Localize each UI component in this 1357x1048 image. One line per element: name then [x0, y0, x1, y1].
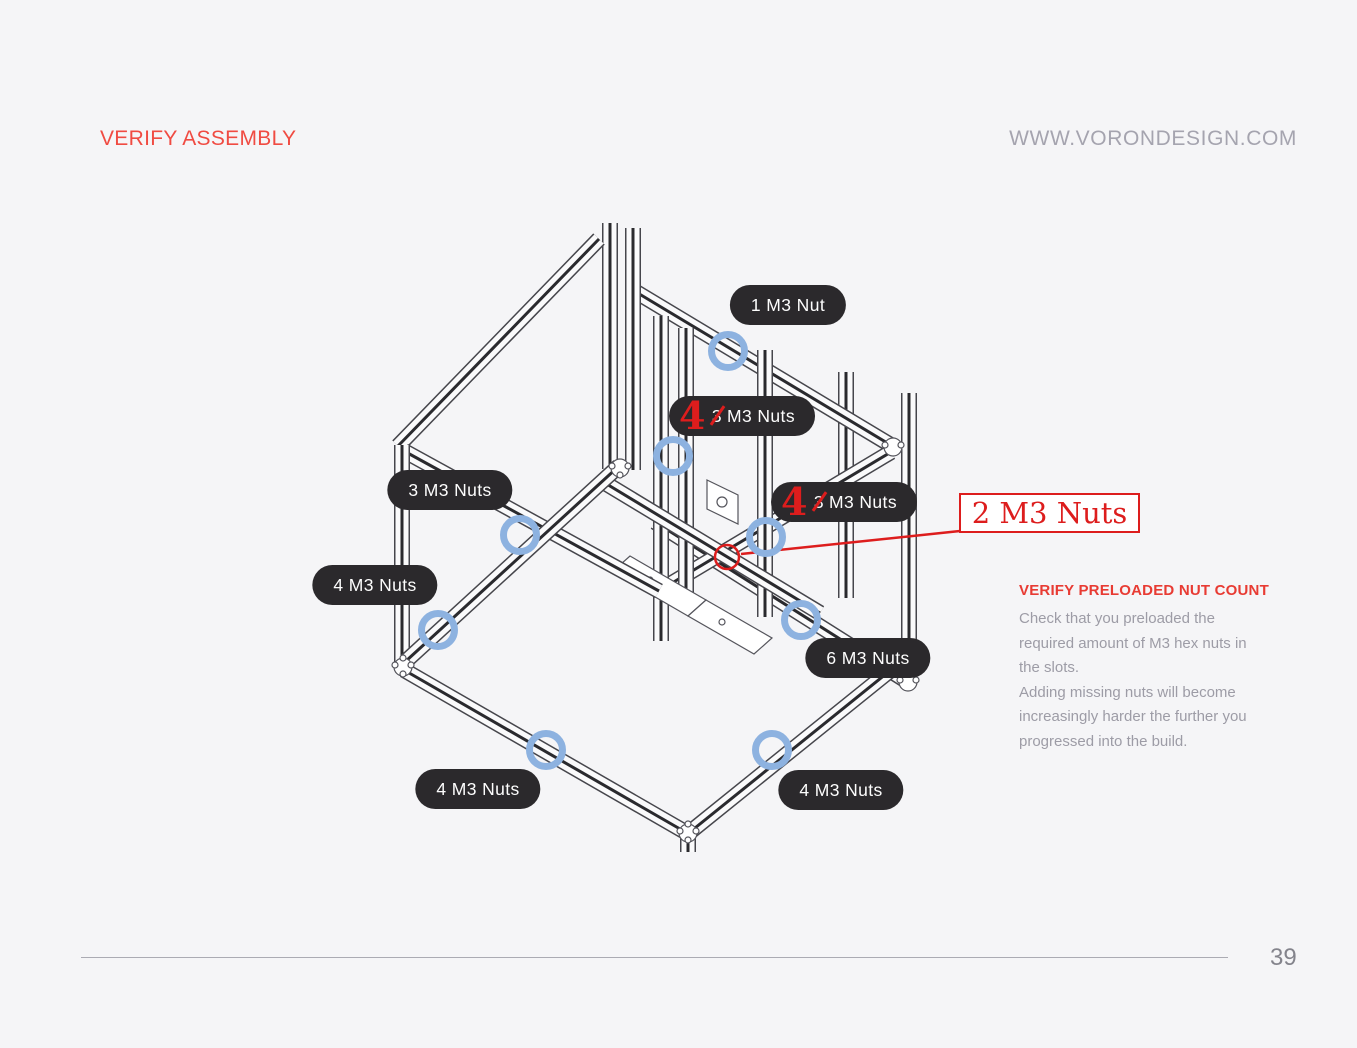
nut-location-marker — [418, 610, 458, 650]
note-paragraph-2: Adding missing nuts will become increasi… — [1019, 681, 1257, 755]
corrected-count: 4 — [679, 397, 706, 435]
verify-note: VERIFY PRELOADED NUT COUNT Check that yo… — [1019, 582, 1261, 755]
note-paragraph-1: Check that you preloaded the required am… — [1019, 607, 1257, 681]
callout-label: 4 M3 Nuts — [799, 780, 882, 801]
nut-count-callout-8: 4 M3 Nuts — [778, 770, 903, 810]
callout-label: 3 M3 Nuts — [408, 480, 491, 501]
struck-count: 3 — [814, 492, 824, 513]
nut-count-callout-1: 1 M3 Nut — [730, 285, 846, 325]
struck-count: 3 — [712, 406, 722, 427]
nut-location-marker — [781, 600, 821, 640]
nut-location-marker — [708, 331, 748, 371]
nut-count-callout-4: 4 3 M3 Nuts — [771, 482, 917, 522]
correction-annotation-box: 2 M3 Nuts — [959, 493, 1140, 533]
nut-count-callout-6: 6 M3 Nuts — [805, 638, 930, 678]
page-number: 39 — [1270, 944, 1297, 972]
frame-illustration — [0, 0, 1357, 1048]
callout-label: M3 Nuts — [829, 492, 897, 513]
nut-location-marker — [526, 730, 566, 770]
nut-location-marker — [752, 730, 792, 770]
nut-count-callout-2: 4 3 M3 Nuts — [669, 396, 815, 436]
manual-page: VERIFY ASSEMBLY WWW.VORONDESIGN.COM — [0, 0, 1357, 1048]
note-heading: VERIFY PRELOADED NUT COUNT — [1019, 582, 1261, 599]
nut-location-marker — [653, 436, 693, 476]
callout-label: 6 M3 Nuts — [826, 648, 909, 669]
corrected-count: 4 — [781, 483, 808, 521]
nut-count-callout-7: 4 M3 Nuts — [415, 769, 540, 809]
callout-label: 1 M3 Nut — [751, 295, 825, 316]
nut-count-callout-5: 4 M3 Nuts — [312, 565, 437, 605]
nut-count-callout-3: 3 M3 Nuts — [387, 470, 512, 510]
footer-divider — [81, 957, 1228, 958]
callout-label: 4 M3 Nuts — [436, 779, 519, 800]
callout-label: 4 M3 Nuts — [333, 575, 416, 596]
nut-location-marker — [500, 515, 540, 555]
nut-location-marker — [746, 517, 786, 557]
callout-label: M3 Nuts — [727, 406, 795, 427]
